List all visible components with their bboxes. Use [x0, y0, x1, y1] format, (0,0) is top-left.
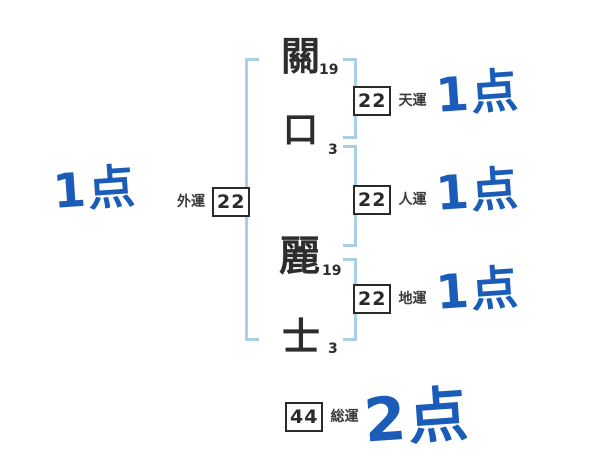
total-luck-score: 2点 — [362, 384, 472, 451]
total-luck-value-box: 44 — [285, 402, 323, 432]
outer-luck-score: 1点 — [51, 163, 138, 216]
outer-luck-label: 外運 — [177, 195, 205, 209]
total-luck-row: 44 総運 — [285, 402, 358, 432]
heaven-luck-value-box: 22 — [353, 86, 391, 116]
outer-luck-value-box: 22 — [212, 187, 250, 217]
name-char-2: 口 — [283, 114, 318, 149]
person-luck-value-box: 22 — [353, 185, 391, 215]
stroke-count-4: 3 — [328, 342, 338, 356]
heaven-luck-row: 22 天運 — [353, 86, 426, 116]
person-luck-row: 22 人運 — [353, 185, 426, 215]
total-luck-label: 総運 — [330, 410, 358, 424]
person-luck-score: 1点 — [434, 165, 521, 218]
heaven-luck-label: 天運 — [398, 94, 426, 108]
earth-luck-value-box: 22 — [353, 284, 391, 314]
earth-luck-score: 1点 — [434, 264, 521, 317]
name-char-4: 士 — [282, 318, 320, 356]
heaven-luck-score: 1点 — [434, 67, 521, 120]
earth-luck-label: 地運 — [398, 292, 426, 306]
name-char-3: 麗 — [279, 236, 320, 277]
stroke-count-1: 19 — [319, 63, 338, 77]
person-luck-label: 人運 — [398, 193, 426, 207]
outer-luck-row: 外運 22 — [177, 187, 250, 217]
stroke-count-2: 3 — [328, 143, 338, 157]
name-fortune-diagram: 關 19 口 3 麗 19 士 3 外運 22 22 天運 22 人運 22 地… — [0, 0, 600, 470]
stroke-count-3: 19 — [322, 264, 341, 278]
name-char-1: 關 — [281, 38, 320, 77]
earth-luck-row: 22 地運 — [353, 284, 426, 314]
